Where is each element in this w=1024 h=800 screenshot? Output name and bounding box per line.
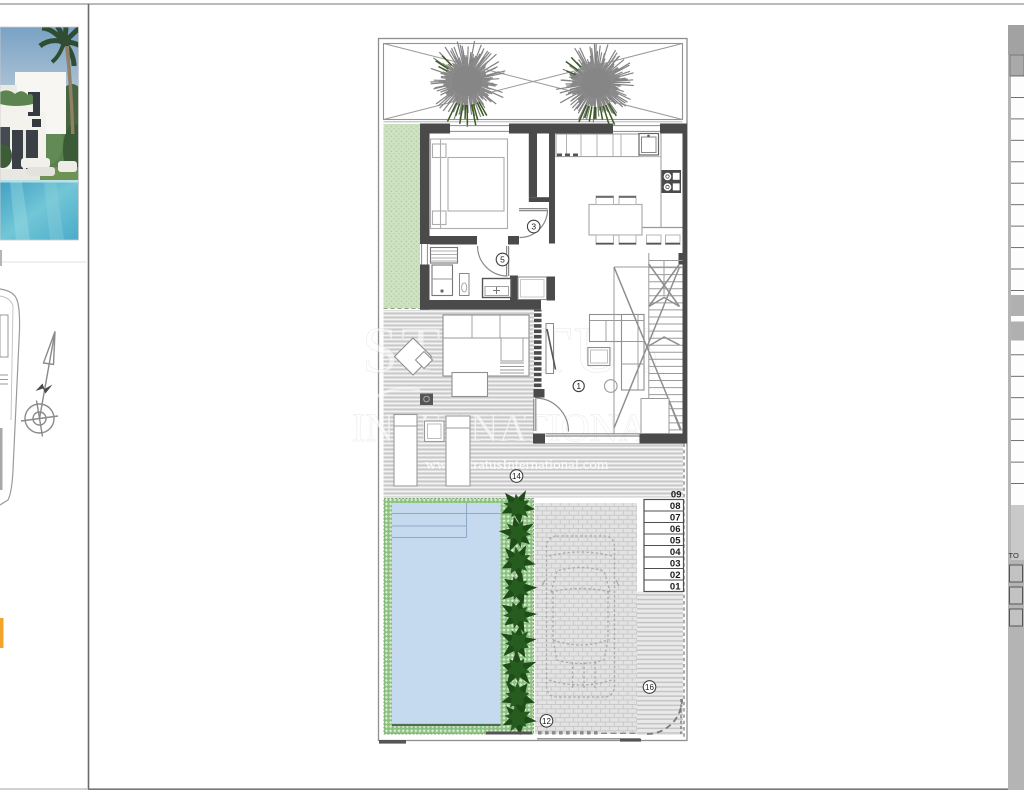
svg-text:05: 05 <box>670 536 681 547</box>
svg-text:06: 06 <box>670 524 681 535</box>
svg-text:09: 09 <box>671 490 682 501</box>
svg-text:12: 12 <box>542 717 551 726</box>
svg-text:TO: TO <box>1009 551 1019 560</box>
svg-text:03: 03 <box>670 559 681 570</box>
svg-text:02: 02 <box>670 570 681 581</box>
svg-text:1: 1 <box>576 381 581 391</box>
svg-text:5: 5 <box>500 255 505 265</box>
svg-text:01: 01 <box>670 582 681 593</box>
svg-text:08: 08 <box>670 501 681 512</box>
svg-text:14: 14 <box>512 472 521 481</box>
svg-text:16: 16 <box>645 683 654 692</box>
svg-text:04: 04 <box>670 547 681 558</box>
svg-text:3: 3 <box>531 222 536 232</box>
svg-text:07: 07 <box>670 513 681 524</box>
